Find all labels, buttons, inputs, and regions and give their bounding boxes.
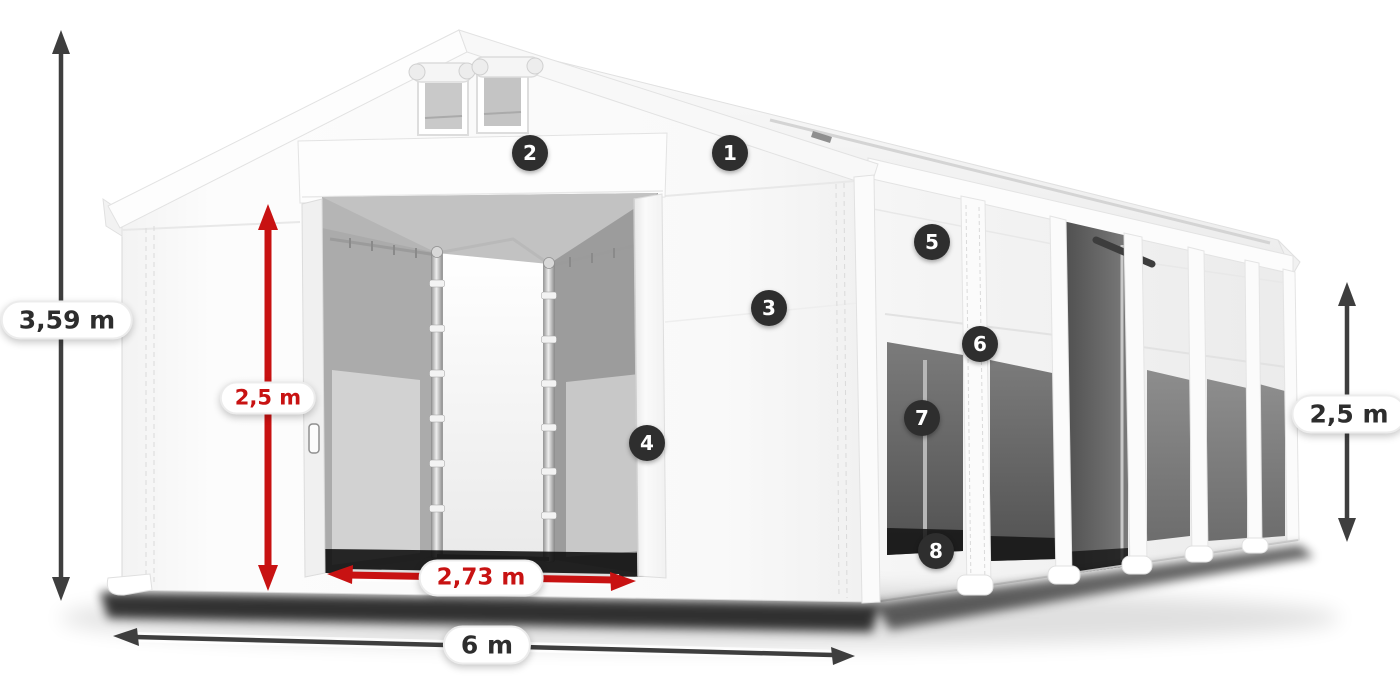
tent-illustration (0, 0, 1400, 700)
side-window-back-1 (1147, 370, 1190, 541)
callout-7[interactable]: 7 (904, 400, 940, 436)
side-window-back-3 (1259, 384, 1285, 538)
callout-8[interactable]: 8 (918, 533, 954, 569)
interior-right-window (566, 374, 640, 557)
dimension-label-entrance-width: 2,73 m (419, 560, 544, 597)
dimension-label-total-height: 3,59 m (1, 301, 133, 340)
callout-6[interactable]: 6 (962, 326, 998, 362)
dimension-label-side-height: 2,5 m (1291, 395, 1400, 434)
front-door-opening (302, 193, 666, 578)
callout-3[interactable]: 3 (751, 290, 787, 326)
right-door-slab-edge (634, 194, 666, 578)
interior-left-window (332, 370, 420, 565)
door-handle (309, 424, 319, 453)
callout-1[interactable]: 1 (712, 135, 748, 171)
callout-4[interactable]: 4 (629, 425, 665, 461)
gable-vent-1 (409, 63, 475, 135)
rear-opening-see-through (437, 253, 549, 559)
frame-pole-left (430, 247, 445, 559)
callout-2[interactable]: 2 (512, 135, 548, 171)
callout-5[interactable]: 5 (914, 224, 950, 260)
dimension-label-entrance-height: 2,5 m (220, 382, 316, 415)
tent-dimension-diagram: 3,59 m 2,5 m 2,73 m 6 m 2,5 m 1 2 3 4 5 … (0, 0, 1400, 700)
frame-pole-right (542, 258, 557, 563)
side-window-back-2 (1207, 379, 1247, 541)
side-window-front-2 (990, 360, 1057, 561)
side-window-front-1 (887, 342, 963, 555)
dimension-label-total-width: 6 m (443, 626, 531, 665)
